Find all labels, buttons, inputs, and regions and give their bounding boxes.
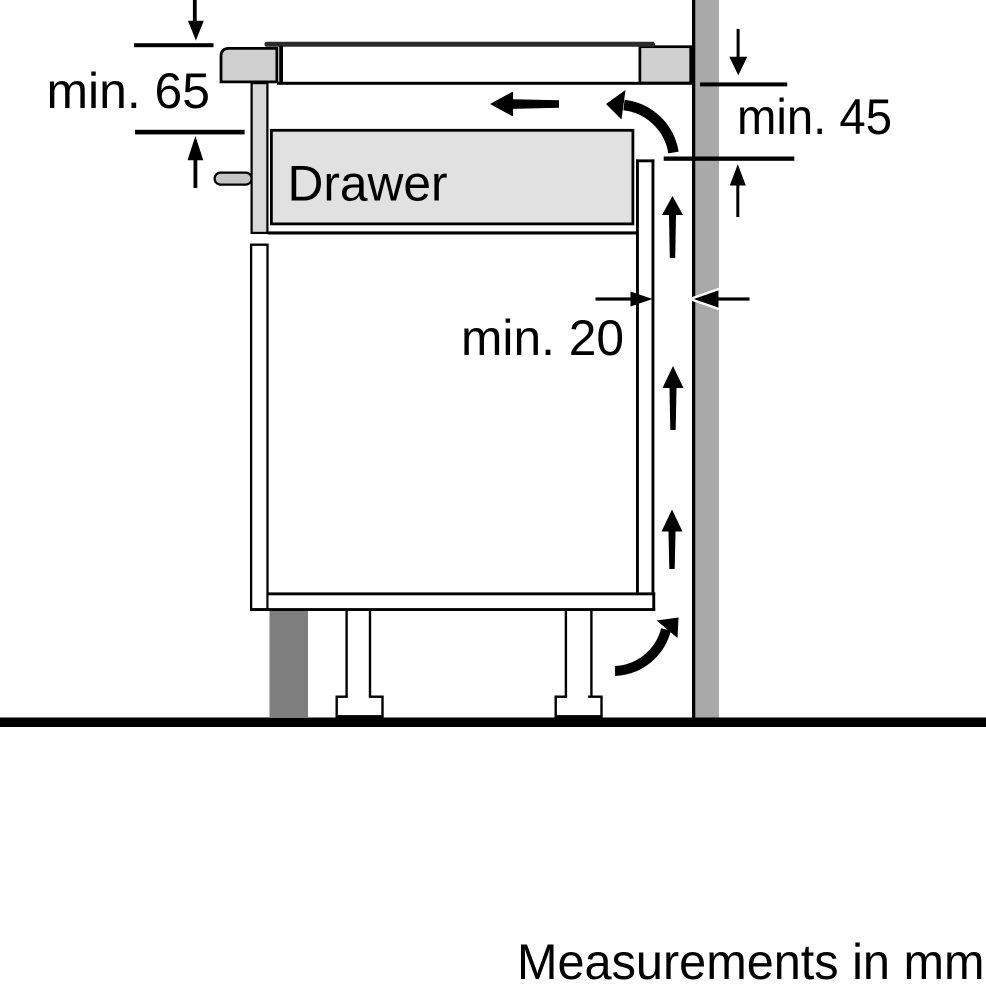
svg-text:Measurements in mm: Measurements in mm xyxy=(517,934,985,990)
svg-text:Drawer: Drawer xyxy=(288,156,448,212)
svg-text:min. 65: min. 65 xyxy=(47,63,211,119)
svg-text:min. 45: min. 45 xyxy=(737,89,892,145)
svg-text:min. 20: min. 20 xyxy=(461,310,624,366)
